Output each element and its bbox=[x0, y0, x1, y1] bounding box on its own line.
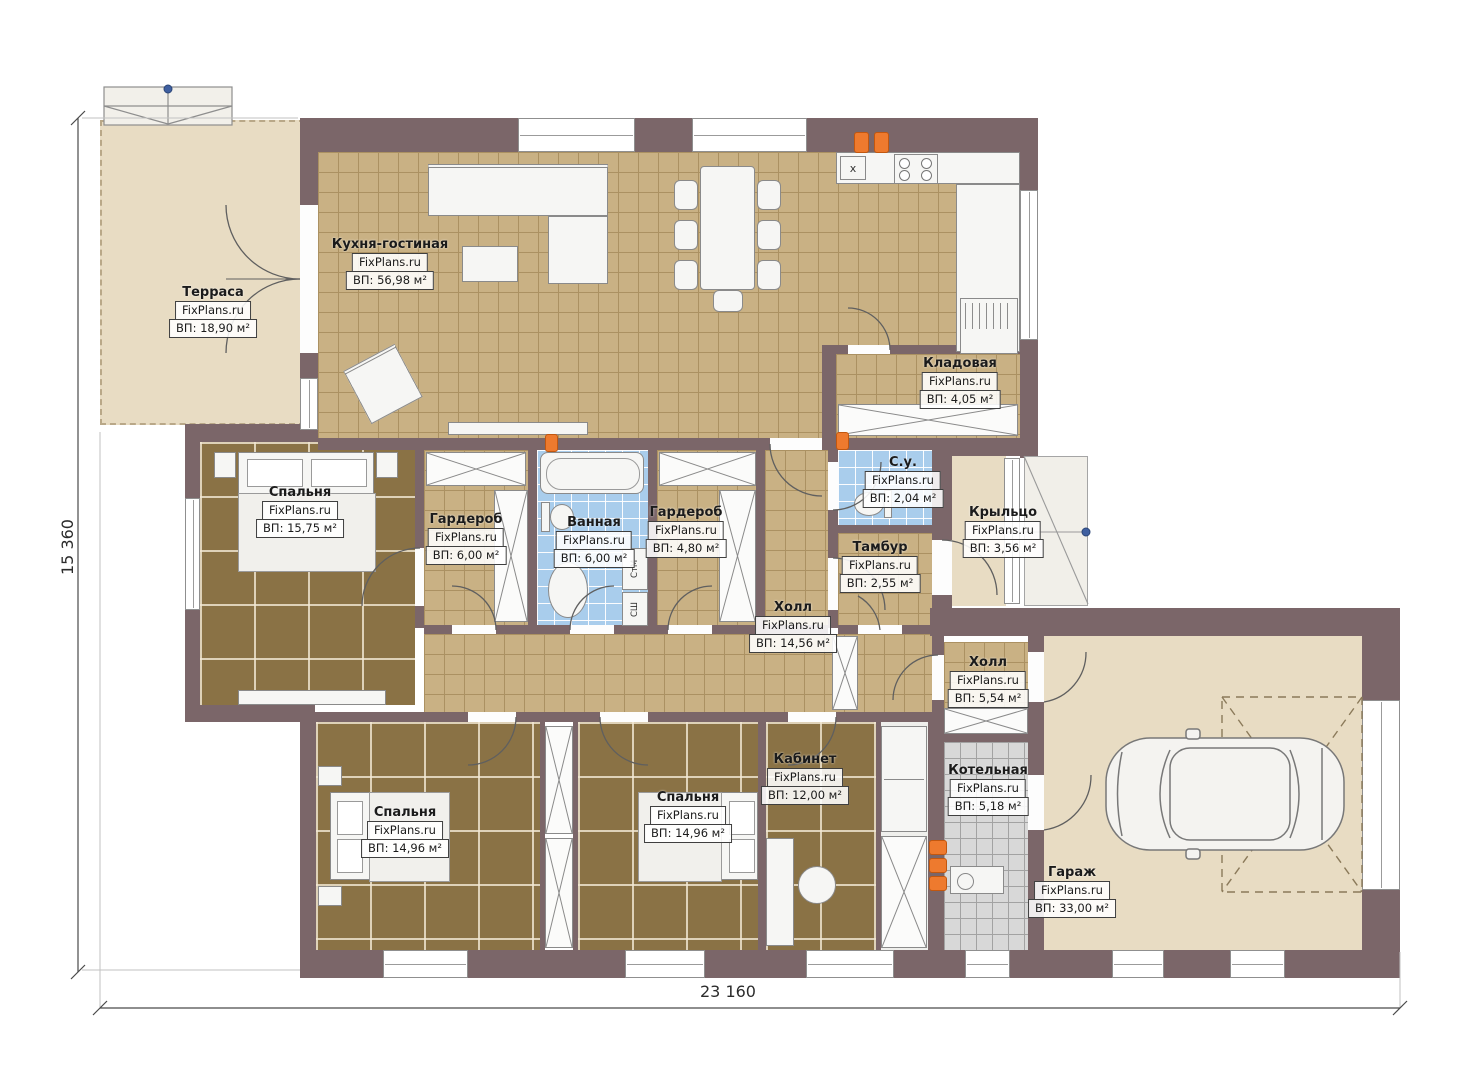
bathtub-inner bbox=[546, 458, 640, 490]
room-brand: FixPlans.ru bbox=[175, 301, 251, 320]
room-label-vestibule: Тамбур FixPlans.ru ВП: 2,55 м² bbox=[840, 540, 921, 593]
fridge bbox=[960, 298, 1018, 354]
wall-terrace-bottom bbox=[185, 424, 318, 442]
wardrobe2-closet-top bbox=[659, 452, 756, 486]
room-name: С.у. bbox=[889, 455, 917, 470]
room-brand: FixPlans.ru bbox=[950, 779, 1026, 798]
wall-porch-top bbox=[932, 440, 1038, 456]
dryer-label: СШ bbox=[630, 601, 640, 616]
room-label-wc: С.у. FixPlans.ru ВП: 2,04 м² bbox=[863, 455, 944, 508]
bathtub bbox=[540, 452, 644, 494]
window-bottom-bedroom2 bbox=[383, 950, 468, 978]
room-name: Гараж bbox=[1048, 865, 1096, 880]
window-top-2 bbox=[692, 118, 807, 152]
door-gap-vestibule-hall bbox=[858, 625, 902, 634]
wall-hall2-boiler bbox=[932, 734, 1028, 742]
dining-table bbox=[700, 166, 755, 290]
dining-chair bbox=[674, 180, 698, 210]
room-brand: FixPlans.ru bbox=[556, 531, 632, 550]
room-brand: FixPlans.ru bbox=[755, 616, 831, 635]
room-area: ВП: 15,75 м² bbox=[256, 519, 344, 538]
window-right-kitchen bbox=[1020, 190, 1038, 340]
room-name: Терраса bbox=[182, 285, 244, 300]
room-area: ВП: 6,00 м² bbox=[426, 546, 507, 565]
wall-left-bottom-band bbox=[300, 712, 316, 970]
room-name: Ванная bbox=[567, 515, 621, 530]
room-brand: FixPlans.ru bbox=[428, 528, 504, 547]
room-label-bathroom: Ванная FixPlans.ru ВП: 6,00 м² bbox=[554, 515, 635, 568]
floor-plan-canvas: x СтМ СШ bbox=[0, 0, 1474, 1080]
pillow bbox=[311, 459, 367, 487]
bath-sink bbox=[548, 562, 588, 618]
room-label-porch: Крыльцо FixPlans.ru ВП: 3,56 м² bbox=[963, 505, 1044, 558]
wall-wc-vestibule bbox=[838, 525, 932, 533]
tv-bench bbox=[448, 422, 588, 435]
wall-pantry-left bbox=[822, 345, 836, 450]
sofa bbox=[428, 164, 608, 216]
window-bottom-garage-2 bbox=[1230, 950, 1285, 978]
room-area: ВП: 5,54 м² bbox=[948, 689, 1029, 708]
bedrooms-closet-lower bbox=[545, 838, 573, 948]
stove-burner bbox=[921, 170, 932, 181]
wall-closet-right bbox=[573, 722, 578, 950]
door-gap-wardrobe2 bbox=[668, 625, 712, 634]
room-name: Котельная bbox=[948, 763, 1028, 778]
room-label-boiler: Котельная FixPlans.ru ВП: 5,18 м² bbox=[948, 763, 1029, 816]
dimension-bottom: 23 160 bbox=[700, 982, 756, 1001]
office-cabinet bbox=[881, 726, 927, 832]
window-left-kitchen bbox=[300, 378, 318, 430]
room-brand: FixPlans.ru bbox=[648, 521, 724, 540]
sink-mark-label: x bbox=[850, 162, 857, 175]
room-brand: FixPlans.ru bbox=[650, 806, 726, 825]
dining-chair bbox=[674, 260, 698, 290]
dresser bbox=[238, 690, 386, 705]
hall2-closet bbox=[944, 708, 1028, 734]
pillow bbox=[337, 801, 363, 835]
radiator bbox=[929, 876, 947, 891]
room-name: Гардероб bbox=[430, 512, 503, 527]
office-closet bbox=[881, 836, 927, 948]
door-gap-hall2 bbox=[932, 655, 944, 700]
stove bbox=[894, 154, 938, 184]
door-gap-wc bbox=[828, 462, 838, 510]
room-name: Гардероб bbox=[650, 505, 723, 520]
terrace-floor bbox=[100, 120, 305, 425]
wall-kitchen-middle-sep bbox=[318, 438, 1020, 450]
room-brand: FixPlans.ru bbox=[965, 521, 1041, 540]
room-area: ВП: 14,96 м² bbox=[644, 824, 732, 843]
door-gap-boiler-garage bbox=[1028, 775, 1044, 830]
radiator bbox=[854, 132, 869, 153]
room-area: ВП: 6,00 м² bbox=[554, 549, 635, 568]
room-name: Холл bbox=[969, 655, 1007, 670]
room-area: ВП: 12,00 м² bbox=[761, 786, 849, 805]
room-area: ВП: 33,00 м² bbox=[1028, 899, 1116, 918]
kitchen-sink: x bbox=[840, 156, 866, 180]
boiler-dial bbox=[957, 873, 974, 890]
dryer: СШ bbox=[622, 592, 648, 626]
wall-step-bottom-left bbox=[185, 705, 315, 722]
radiator bbox=[874, 132, 889, 153]
door-gap-bedroom1 bbox=[415, 548, 424, 606]
dining-chair bbox=[757, 220, 781, 250]
stove-burner bbox=[899, 170, 910, 181]
room-label-bedroom1: Спальня FixPlans.ru ВП: 15,75 м² bbox=[256, 485, 344, 538]
toilet-bath-tank bbox=[541, 502, 550, 532]
wall-v-wardrobe1-bath bbox=[528, 450, 537, 628]
room-brand: FixPlans.ru bbox=[367, 821, 443, 840]
room-brand: FixPlans.ru bbox=[1034, 881, 1110, 900]
room-name: Кабинет bbox=[774, 752, 837, 767]
room-name: Кухня-гостиная bbox=[332, 237, 448, 252]
radiator bbox=[836, 432, 849, 450]
stove-burner bbox=[899, 158, 910, 169]
door-gap-bedroom3 bbox=[600, 712, 648, 722]
room-name: Тамбур bbox=[852, 540, 907, 555]
room-label-wardrobe2: Гардероб FixPlans.ru ВП: 4,80 м² bbox=[646, 505, 727, 558]
room-name: Крыльцо bbox=[969, 505, 1037, 520]
door-gap-wardrobe1 bbox=[452, 625, 496, 634]
door-gap-office bbox=[788, 712, 836, 722]
room-label-hall1: Холл FixPlans.ru ВП: 14,56 м² bbox=[749, 600, 837, 653]
dining-chair bbox=[674, 220, 698, 250]
pillow bbox=[729, 839, 755, 873]
radiator bbox=[929, 858, 947, 873]
room-area: ВП: 4,80 м² bbox=[646, 539, 727, 558]
room-brand: FixPlans.ru bbox=[922, 372, 998, 391]
room-area: ВП: 14,56 м² bbox=[749, 634, 837, 653]
window-bottom-bedroom3 bbox=[625, 950, 705, 978]
dining-chair bbox=[757, 180, 781, 210]
pillow bbox=[247, 459, 303, 487]
room-label-hall2: Холл FixPlans.ru ВП: 5,54 м² bbox=[948, 655, 1029, 708]
room-name: Спальня bbox=[374, 805, 436, 820]
coffee-table bbox=[462, 246, 518, 282]
garage-door-right bbox=[1362, 700, 1400, 890]
room-area: ВП: 14,96 м² bbox=[361, 839, 449, 858]
room-brand: FixPlans.ru bbox=[842, 556, 918, 575]
window-bottom-office bbox=[806, 950, 894, 978]
room-area: ВП: 56,98 м² bbox=[346, 271, 434, 290]
room-label-pantry: Кладовая FixPlans.ru ВП: 4,05 м² bbox=[920, 356, 1001, 409]
pillow bbox=[729, 801, 755, 835]
window-left-bedroom1 bbox=[185, 498, 200, 610]
wardrobe1-closet-top bbox=[426, 452, 526, 486]
door-gap-vestibule-porch bbox=[932, 540, 952, 595]
room-area: ВП: 4,05 м² bbox=[920, 390, 1001, 409]
room-area: ВП: 3,56 м² bbox=[963, 539, 1044, 558]
door-gap-bathroom bbox=[570, 625, 614, 634]
boiler-unit bbox=[950, 866, 1004, 894]
office-desk bbox=[766, 838, 794, 946]
room-brand: FixPlans.ru bbox=[352, 253, 428, 272]
room-brand: FixPlans.ru bbox=[262, 501, 338, 520]
opening-living-hall bbox=[770, 438, 822, 450]
door-gap-bedroom2 bbox=[468, 712, 516, 722]
room-label-office: Кабинет FixPlans.ru ВП: 12,00 м² bbox=[761, 752, 849, 805]
dimension-left: 15 360 bbox=[58, 519, 77, 575]
office-chair bbox=[798, 866, 836, 904]
bedrooms-closet-upper bbox=[545, 726, 573, 834]
fridge-coil bbox=[965, 303, 1013, 329]
wall-garage-top bbox=[930, 608, 1400, 636]
room-label-bedroom2: Спальня FixPlans.ru ВП: 14,96 м² bbox=[361, 805, 449, 858]
nightstand bbox=[376, 452, 398, 478]
room-name: Холл bbox=[774, 600, 812, 615]
sofa-chaise bbox=[548, 216, 608, 284]
room-brand: FixPlans.ru bbox=[767, 768, 843, 787]
window-bottom-garage-1 bbox=[1112, 950, 1164, 978]
dining-chair bbox=[757, 260, 781, 290]
radiator bbox=[545, 434, 558, 452]
nightstand bbox=[318, 886, 342, 906]
room-name: Спальня bbox=[657, 790, 719, 805]
radiator bbox=[929, 840, 947, 855]
room-name: Спальня bbox=[269, 485, 331, 500]
window-top-1 bbox=[518, 118, 635, 152]
room-area: ВП: 2,04 м² bbox=[863, 489, 944, 508]
wall-closetcol-boiler bbox=[928, 722, 944, 950]
room-label-kitchen-living: Кухня-гостиная FixPlans.ru ВП: 56,98 м² bbox=[332, 237, 448, 290]
stove-burner bbox=[921, 158, 932, 169]
room-area: ВП: 2,55 м² bbox=[840, 574, 921, 593]
nightstand bbox=[318, 766, 342, 786]
wall-corridor-bottom bbox=[300, 712, 1042, 722]
door-gap-terrace bbox=[300, 205, 318, 353]
door-gap-pantry bbox=[848, 345, 890, 354]
window-bottom-boiler bbox=[965, 950, 1010, 978]
room-label-wardrobe1: Гардероб FixPlans.ru ВП: 6,00 м² bbox=[426, 512, 507, 565]
room-brand: FixPlans.ru bbox=[865, 471, 941, 490]
room-label-bedroom3: Спальня FixPlans.ru ВП: 14,96 м² bbox=[644, 790, 732, 843]
dining-chair bbox=[713, 290, 743, 312]
room-area: ВП: 18,90 м² bbox=[169, 319, 257, 338]
wall-top bbox=[300, 118, 1038, 152]
room-brand: FixPlans.ru bbox=[950, 671, 1026, 690]
door-gap-hall2-garage bbox=[1028, 652, 1044, 702]
room-name: Кладовая bbox=[923, 356, 997, 371]
room-label-garage: Гараж FixPlans.ru ВП: 33,00 м² bbox=[1028, 865, 1116, 918]
room-area: ВП: 5,18 м² bbox=[948, 797, 1029, 816]
nightstand bbox=[214, 452, 236, 478]
pillow bbox=[337, 839, 363, 873]
room-label-terrace: Терраса FixPlans.ru ВП: 18,90 м² bbox=[169, 285, 257, 338]
